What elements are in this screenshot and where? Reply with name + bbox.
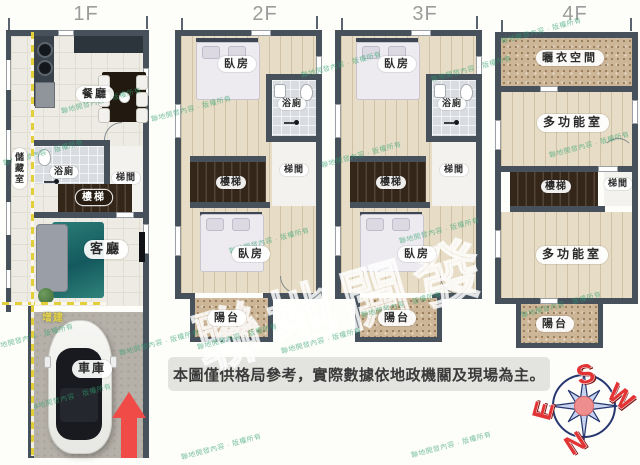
wall [335, 30, 482, 36]
floor-title-3f: 3F [395, 3, 455, 26]
pillow [202, 46, 220, 59]
faucet-icon [44, 181, 54, 183]
sink-icon [274, 84, 286, 98]
sink-icon [434, 84, 446, 98]
pillow [392, 218, 410, 231]
room-label-stairs: 樓梯 [541, 180, 571, 193]
dimension-tick [476, 16, 478, 29]
wall [6, 90, 11, 130]
pillow [232, 218, 250, 231]
dimension-tick [341, 18, 343, 30]
room-label-bedroom: 臥房 [378, 56, 416, 72]
room-label-drying: 曬衣空間 [536, 50, 604, 66]
pillow [206, 218, 224, 231]
dimension-tick [501, 20, 503, 32]
stove-burner-icon [37, 60, 53, 76]
room-label-multiroom: 多功能室 [537, 114, 609, 132]
room-label-storage: 儲藏室 [12, 148, 27, 189]
kitchen-appliance [35, 82, 55, 108]
dimension-tick [630, 18, 632, 31]
dimension-tick [146, 16, 148, 29]
wall [175, 30, 322, 36]
car-mirror [44, 356, 51, 368]
sofa [36, 224, 68, 292]
faucet-icon [294, 120, 299, 125]
wall [143, 306, 149, 458]
room-label-bedroom: 臥房 [218, 56, 256, 72]
wall [516, 343, 603, 348]
faucet-icon [454, 120, 459, 125]
room-label-bedroom: 臥房 [398, 246, 436, 262]
compass-letter-west: W [602, 377, 640, 417]
floor-title-1f: 1F [56, 3, 116, 26]
window [175, 226, 181, 256]
room-label-balcony: 陽台 [536, 316, 574, 332]
room-label-stairhall: 梯間 [604, 178, 632, 190]
floor-title-2f: 2F [235, 3, 295, 26]
window [411, 30, 431, 36]
wall [6, 288, 11, 312]
dimension-tick [181, 18, 183, 30]
room-label-bath: 浴廁 [438, 98, 466, 110]
compass-rose: S S W W N N E E [528, 354, 640, 464]
kitchen-cabinet [74, 36, 143, 53]
pillow [366, 218, 384, 231]
wall [632, 32, 638, 298]
yellow-dashed-line [2, 302, 106, 305]
floorplan-image: 1F 2F 3F 4F 餐廳 儲藏室 浴廁 梯間 樓梯 客廳 [0, 0, 640, 465]
chair [98, 108, 110, 123]
room-label-bedroom: 臥房 [232, 246, 270, 262]
room-label-multiroom: 多功能室 [536, 246, 608, 264]
room-label-stairs: 樓梯 [216, 176, 246, 189]
wall [6, 235, 11, 270]
room-label-bath: 浴廁 [278, 98, 306, 110]
watermark-small: 聯地開發內容 · 版權所有 [180, 431, 263, 462]
annex-note: 增建 [42, 309, 64, 324]
yellow-dashed-line [31, 32, 34, 456]
room-label-dining: 餐廳 [76, 86, 114, 102]
faucet-icon [444, 122, 454, 124]
tv [139, 232, 145, 262]
wall [175, 30, 181, 299]
window [251, 30, 271, 36]
room-label-living: 客廳 [84, 240, 128, 259]
dimension-tick [8, 18, 10, 30]
door-opening [58, 30, 74, 36]
chair [136, 108, 148, 123]
watermark-small: 聯地開發內容 · 版權所有 [410, 429, 493, 460]
door-opening [116, 212, 134, 218]
room-label-stairhall: 梯間 [280, 164, 308, 176]
wall [190, 202, 270, 208]
room-label-balcony: 陽台 [208, 310, 246, 326]
compass-letter-east: E [528, 398, 560, 423]
window [335, 104, 341, 138]
room-label-stairhall: 梯間 [440, 164, 468, 176]
wall [598, 304, 603, 348]
room-label-stairhall: 梯間 [112, 172, 140, 184]
room-label-garage: 車庫 [72, 360, 112, 378]
compass-letter-south: S [573, 357, 598, 390]
stove-burner-icon [37, 42, 53, 58]
faucet-icon [284, 122, 294, 124]
window [632, 100, 638, 124]
room-label-bath: 浴廁 [50, 166, 78, 178]
room-label-stairs: 樓梯 [76, 190, 112, 205]
compass-center [575, 397, 594, 416]
room-label-stairs: 樓梯 [376, 176, 406, 189]
entry-arrow-icon [121, 416, 137, 458]
dimension-tick [316, 16, 318, 29]
room-label-balcony: 陽台 [378, 310, 416, 326]
entry-arrow-icon [112, 392, 146, 418]
wall [350, 202, 430, 208]
